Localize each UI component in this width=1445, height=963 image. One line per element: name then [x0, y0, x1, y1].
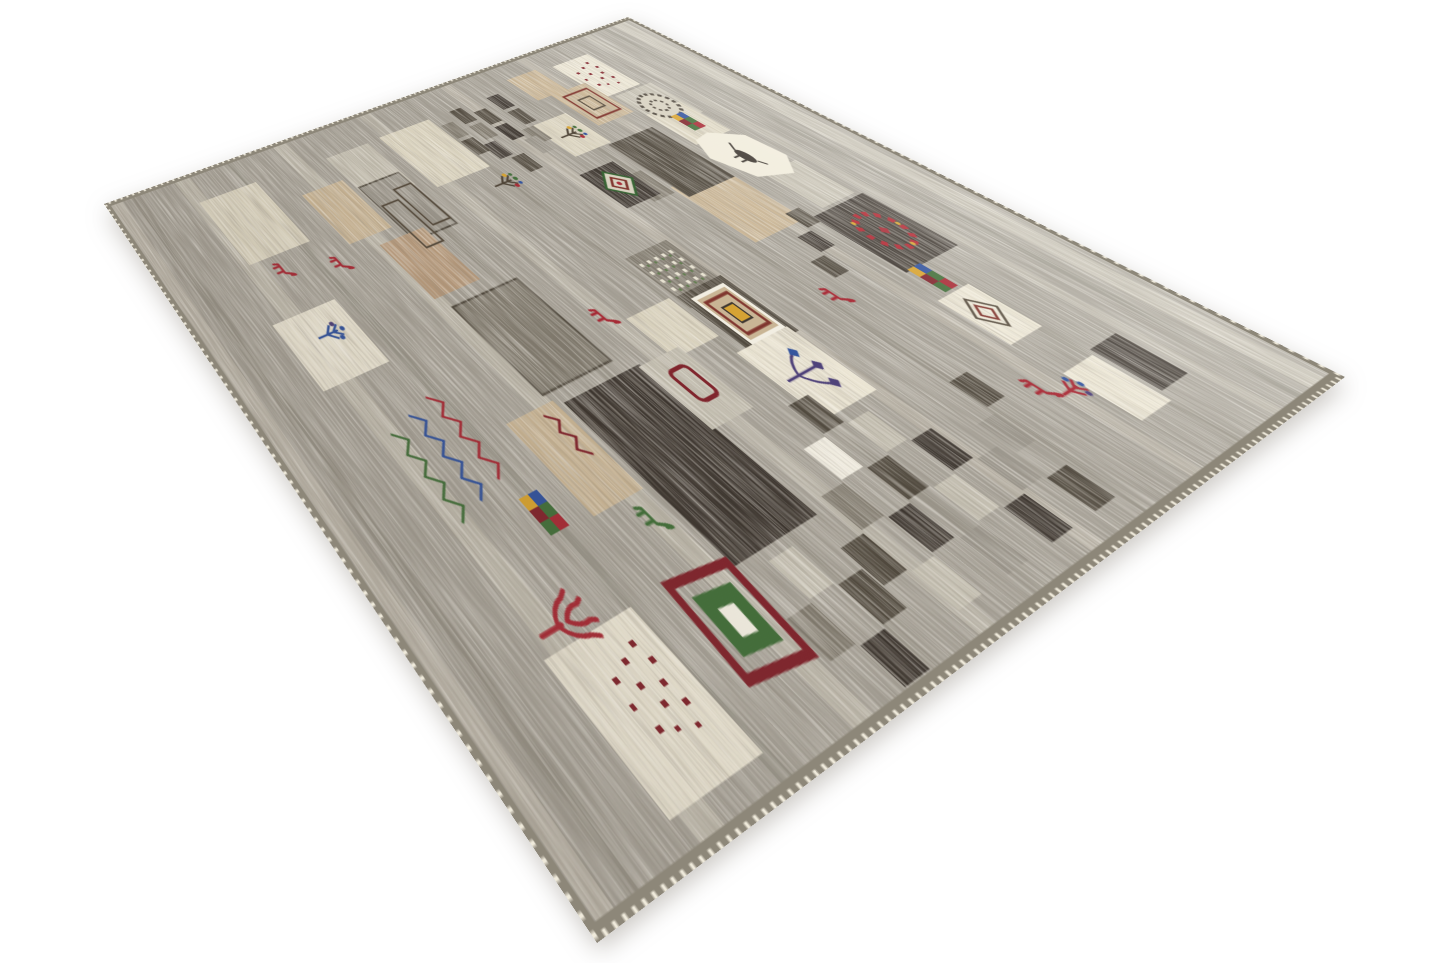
rug-svg — [104, 17, 1345, 943]
rug-shadow — [0, 0, 1445, 963]
product-photo-stage — [0, 0, 1445, 963]
gabbeh-rug — [104, 17, 1345, 943]
